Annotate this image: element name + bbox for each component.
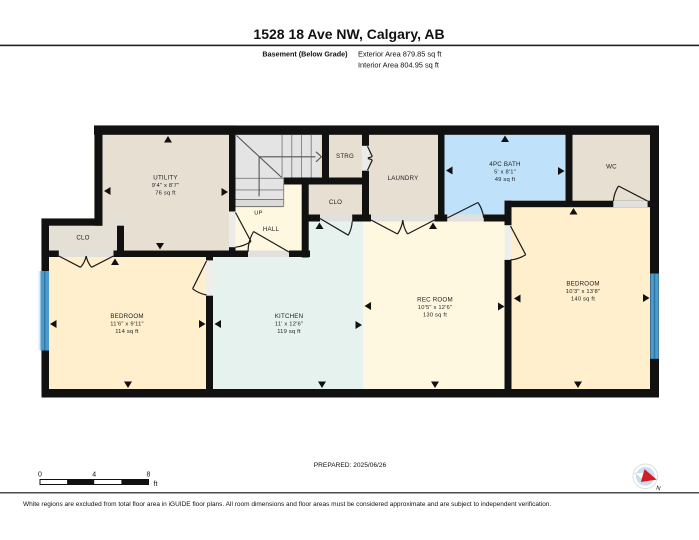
svg-text:White regions are excluded fro: White regions are excluded from total fl… (23, 501, 551, 508)
svg-text:PREPARED: 2025/06/26: PREPARED: 2025/06/26 (314, 462, 387, 469)
svg-text:119 sq ft: 119 sq ft (277, 329, 301, 335)
svg-text:10'5" x 12'6": 10'5" x 12'6" (418, 305, 452, 311)
svg-text:140 sq ft: 140 sq ft (571, 297, 595, 303)
svg-text:Basement (Below Grade): Basement (Below Grade) (262, 50, 348, 59)
svg-text:0: 0 (38, 472, 42, 479)
svg-text:4: 4 (92, 472, 96, 479)
svg-text:11'6" x 9'11": 11'6" x 9'11" (110, 322, 144, 328)
svg-text:11' x 12'6": 11' x 12'6" (275, 322, 303, 328)
svg-text:1528 18 Ave NW, Calgary, AB: 1528 18 Ave NW, Calgary, AB (253, 26, 444, 42)
svg-text:LAUNDRY: LAUNDRY (388, 175, 419, 182)
svg-text:KITCHEN: KITCHEN (275, 313, 304, 320)
svg-text:ft: ft (154, 481, 158, 488)
svg-text:8: 8 (147, 472, 151, 479)
svg-text:UTILITY: UTILITY (153, 175, 177, 182)
svg-text:BEDROOM: BEDROOM (566, 281, 599, 288)
svg-text:REC ROOM: REC ROOM (417, 297, 453, 304)
svg-text:9'4" x 8'7": 9'4" x 8'7" (152, 183, 180, 189)
svg-text:CLO: CLO (76, 235, 89, 242)
svg-text:UP: UP (254, 211, 262, 217)
svg-text:WC: WC (606, 164, 617, 171)
svg-text:4PC BATH: 4PC BATH (489, 161, 520, 168)
svg-text:5' x 8'1": 5' x 8'1" (494, 170, 516, 176)
svg-text:Exterior Area 879.85 sq ft: Exterior Area 879.85 sq ft (358, 50, 441, 59)
svg-text:BEDROOM: BEDROOM (110, 313, 143, 320)
svg-text:49 sq ft: 49 sq ft (495, 177, 516, 183)
svg-text:114 sq ft: 114 sq ft (115, 329, 139, 335)
svg-text:Interior Area 804.95 sq ft: Interior Area 804.95 sq ft (358, 61, 439, 70)
svg-text:130 sq ft: 130 sq ft (423, 313, 447, 319)
svg-text:CLO: CLO (329, 199, 342, 206)
svg-text:76 sq ft: 76 sq ft (155, 191, 176, 197)
svg-text:STRG: STRG (336, 153, 354, 160)
svg-text:10'3" x 13'8": 10'3" x 13'8" (566, 289, 600, 295)
svg-text:HALL: HALL (263, 226, 280, 233)
